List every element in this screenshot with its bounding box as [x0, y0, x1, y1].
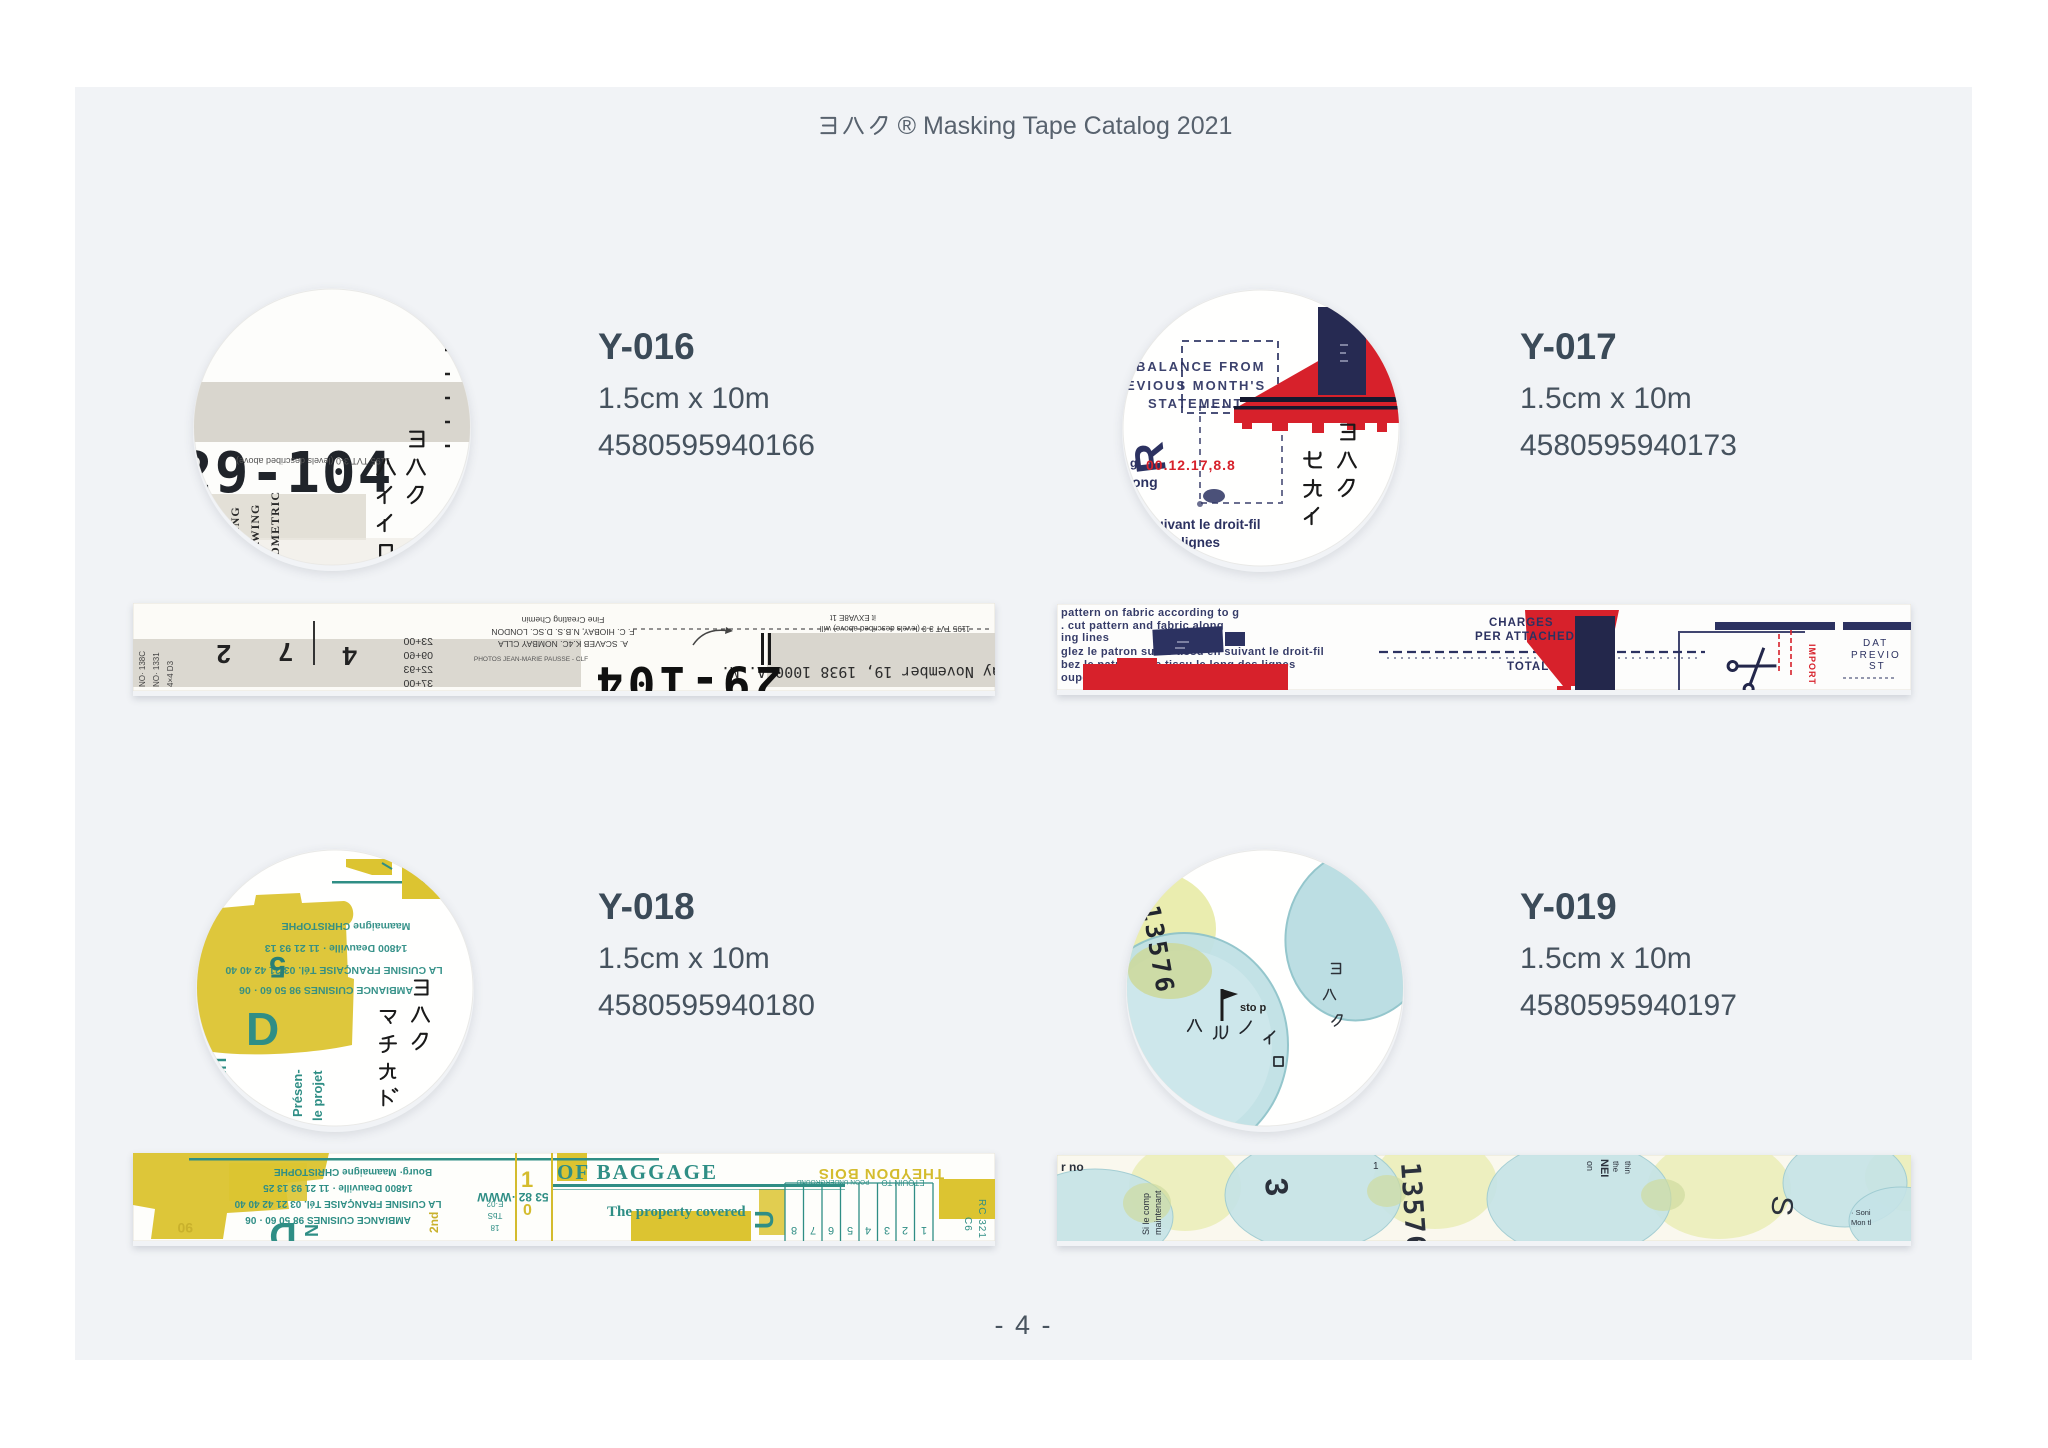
svg-text:Maamaigne CHRISTOPHE: Maamaigne CHRISTOPHE — [282, 920, 411, 932]
product-code: Y-016 — [598, 328, 1018, 365]
rotated-number: 13576 — [1394, 1161, 1431, 1241]
rotated-digit: 3 — [1258, 1176, 1295, 1197]
svg-text:09+60: 09+60 — [403, 650, 433, 662]
svg-text:LA CUISINE FRANÇAISE Tél. 03 2: LA CUISINE FRANÇAISE Tél. 03 21 42 40 40 — [234, 1198, 441, 1209]
svg-text:le projet: le projet — [310, 1070, 325, 1121]
import-vertical-text: IMPORT — [1807, 644, 1817, 685]
svg-text:g.: g. — [1130, 456, 1141, 470]
product-size: 1.5cm x 10m — [598, 942, 1018, 977]
product-barcode: 4580595940173 — [1520, 429, 1940, 464]
svg-text:PREVIO: PREVIO — [1851, 650, 1901, 661]
small-upside-words: ETQUIN TO POON UNDERGROUND — [796, 1178, 924, 1187]
red-date: 00.12.17,8.8 — [1146, 457, 1236, 473]
svg-text:1195 TVT 3-0 (levels described: 1195 TVT 3-0 (levels described above) wi… — [820, 624, 971, 633]
svg-text:1: 1 — [921, 1224, 927, 1236]
swatch-image-y016: 29-104 1195 TVT 3-0 (levels described ab… — [193, 288, 471, 571]
photo-credit: PHOTOS JEAN-MARIE PAUSSE - CLF — [474, 656, 588, 663]
svg-text:1: 1 — [1373, 1161, 1379, 1172]
svg-text:F. C. HIOBAY, N.B.S. D.SC. LON: F. C. HIOBAY, N.B.S. D.SC. LONDON — [491, 627, 634, 637]
product-info-y016: Y-016 1.5cm x 10m 4580595940166 — [598, 328, 1018, 475]
svg-text:EVIOUS MONTH'S: EVIOUS MONTH'S — [1126, 378, 1266, 393]
svg-text:Mon tl: Mon tl — [1851, 1218, 1872, 1227]
svg-text:N: N — [302, 1224, 322, 1237]
svg-text:4: 4 — [865, 1224, 871, 1236]
svg-text:Fine Creating Chemin: Fine Creating Chemin — [521, 615, 604, 625]
svg-text:23+00: 23+00 — [403, 636, 433, 648]
svg-text:ETQUIN TO: ETQUIN TO — [881, 1178, 924, 1187]
product-code: Y-019 — [1520, 888, 1940, 925]
svg-text:2: 2 — [217, 639, 231, 669]
svg-text:pattern on fabric according to: pattern on fabric according to g — [1061, 607, 1239, 619]
svg-text:14800 Deauville · 11 21 93 13: 14800 Deauville · 11 21 93 13 25 — [263, 1182, 413, 1193]
svg-text:thin: thin — [1623, 1161, 1632, 1174]
svg-text:it EXVA8E 1t: it EXVA8E 1t — [829, 613, 875, 622]
stop-text: sto p — [1240, 1002, 1267, 1014]
svg-text:18: 18 — [490, 1223, 499, 1232]
svg-text:NO· 1331: NO· 1331 — [152, 652, 161, 687]
navy-blob — [1152, 626, 1223, 656]
svg-text:BALANCE FROM: BALANCE FROM — [1136, 359, 1265, 374]
product-code: Y-017 — [1520, 328, 1940, 365]
vertical-word: MEMI — [211, 1055, 230, 1111]
swatch-image-y018: Maamaigne CHRISTOPHE 14800 Deauville · 1… — [196, 849, 474, 1132]
gray-band — [193, 382, 471, 442]
svg-text:ing lines: ing lines — [1061, 632, 1109, 644]
svg-text:1: 1 — [521, 1167, 533, 1192]
big-letter-d: D — [269, 1214, 296, 1241]
svg-text:TbS: TbS — [488, 1211, 503, 1220]
svg-text:CHARGES: CHARGES — [1489, 617, 1554, 629]
svg-text:ong: ong — [1132, 474, 1158, 490]
product-barcode: 4580595940180 — [598, 989, 1018, 1024]
svg-text:4: 4 — [342, 641, 357, 671]
svg-text:5: 5 — [847, 1224, 853, 1236]
svg-text:ST: ST — [1869, 661, 1886, 672]
svg-text:LA CUISINE FRANÇAISE Tél. 03 2: LA CUISINE FRANÇAISE Tél. 03 21 42 40 40 — [225, 964, 442, 976]
tape-strip-y017: pattern on fabric according to g . cut p… — [1057, 604, 1911, 695]
page-number: - 4 - — [75, 1310, 1972, 1341]
page-title-text: ® Masking Tape Catalog 2021 — [898, 112, 1233, 141]
svg-text:on: on — [1585, 1161, 1595, 1171]
big-letter-d: D — [246, 1003, 279, 1055]
product-barcode: 4580595940166 — [598, 429, 1018, 464]
svg-text:3: 3 — [884, 1224, 890, 1236]
svg-text:NO· 138C: NO· 138C — [138, 651, 147, 687]
product-size: 1.5cm x 10m — [1520, 942, 1940, 977]
svg-text:2: 2 — [902, 1224, 908, 1236]
rotated-letter: S — [1764, 1194, 1799, 1217]
svg-text:7: 7 — [810, 1224, 816, 1236]
brand-kana-logo — [815, 113, 891, 141]
svg-text:U: U — [749, 1210, 779, 1229]
svg-text:6: 6 — [828, 1224, 834, 1236]
red-band — [1083, 664, 1288, 690]
svg-text:the: the — [1611, 1161, 1620, 1173]
svg-text:A. SCAVEB K.4C. NOMBAY CLLA: A. SCAVEB K.4C. NOMBAY CLLA — [498, 639, 628, 649]
product-info-y017: Y-017 1.5cm x 10m 4580595940173 — [1520, 328, 1940, 475]
svg-text:TOTAL: TOTAL — [1507, 661, 1549, 673]
svg-text:DAT: DAT — [1863, 638, 1888, 649]
tape-strip-y019: r no Si le comp maintenant 3 1 13576 on … — [1057, 1155, 1911, 1246]
svg-text:37+00: 37+00 — [403, 678, 433, 690]
swatch-image-y017: BALANCE FROM EVIOUS MONTH'S STATEMENT R … — [1122, 289, 1400, 572]
svg-text:PER ATTACHED: PER ATTACHED — [1475, 631, 1575, 643]
svg-text:2nd: 2nd — [427, 1212, 441, 1233]
svg-text:8: 8 — [791, 1224, 797, 1236]
product-info-y018: Y-018 1.5cm x 10m 4580595940180 — [598, 888, 1018, 1035]
ink-smudge — [1203, 489, 1225, 503]
svg-text:22+93: 22+93 — [403, 664, 433, 676]
svg-text:ISOMETRIC: ISOMETRIC — [268, 491, 282, 566]
swatch-image-y019: 13576 sto p — [1126, 849, 1404, 1132]
svg-text:AMBIANCE CUISINES 98 50 60 · 0: AMBIANCE CUISINES 98 50 60 · 06 — [239, 984, 413, 996]
navy-block — [1318, 307, 1366, 395]
svg-text:suivant le droit-fil: suivant le droit-fil — [1148, 517, 1261, 532]
product-barcode: 4580595940197 — [1520, 989, 1940, 1024]
credit-lines: · Soni Mon tl — [1851, 1208, 1872, 1227]
svg-text:Bourg· Maamaigne CHRISTOPHE: Bourg· Maamaigne CHRISTOPHE — [274, 1166, 432, 1177]
left-text: r no — [1061, 1160, 1084, 1174]
product-code: Y-018 — [598, 888, 1018, 925]
navy-bar — [1575, 616, 1615, 690]
product-size: 1.5cm x 10m — [598, 382, 1018, 417]
tape-strip-y018: Bourg· Maamaigne CHRISTOPHE 14800 Deauvi… — [133, 1153, 995, 1246]
catalog-page: { "header": { "brand_jp": "ヨハク", "title_… — [0, 0, 2048, 1448]
svg-text:Si le comp: Si le comp — [1141, 1193, 1151, 1235]
svg-text:NEI: NEI — [1598, 1159, 1610, 1177]
svg-text:DRAWING: DRAWING — [248, 504, 262, 566]
svg-text:des lignes: des lignes — [1154, 535, 1220, 550]
big-ticket-number: 29-104 — [592, 656, 782, 691]
svg-text:90: 90 — [177, 1220, 193, 1236]
svg-text:C6: C6 — [962, 1217, 973, 1232]
svg-text:RC 321: RC 321 — [976, 1199, 987, 1239]
svg-text:· Soni: · Soni — [1851, 1208, 1871, 1217]
svg-text:4×4 D3: 4×4 D3 — [166, 660, 175, 687]
svg-text:TRACING: TRACING — [228, 506, 242, 566]
mirrored-caption: 1195 TVT 3-0 (levels described above) — [236, 456, 390, 466]
page-title: ® Masking Tape Catalog 2021 — [75, 112, 1972, 141]
subline: The property covered — [607, 1204, 746, 1220]
tape-strip-y016: NO· 138C NO· 1331 4×4 D3 2 7 4 23+00 09+… — [133, 603, 995, 696]
product-info-y019: Y-019 1.5cm x 10m 4580595940197 — [1520, 888, 1940, 1035]
ticket-number: 29-104 — [193, 441, 393, 506]
svg-text:7: 7 — [279, 637, 293, 667]
svg-text:Présen-: Présen- — [290, 1069, 305, 1117]
svg-text:POON UNDERGROUND: POON UNDERGROUND — [796, 1178, 869, 1185]
svg-text:maintenant: maintenant — [1153, 1190, 1163, 1235]
headline: OF BAGGAGE — [557, 1160, 718, 1184]
navy-thick-bar — [1715, 622, 1835, 630]
svg-text:STATEMENT: STATEMENT — [1148, 396, 1244, 411]
www-text: 53 82 ·WWW — [477, 1190, 549, 1204]
big-digit: 5 — [269, 950, 286, 983]
product-size: 1.5cm x 10m — [1520, 382, 1940, 417]
